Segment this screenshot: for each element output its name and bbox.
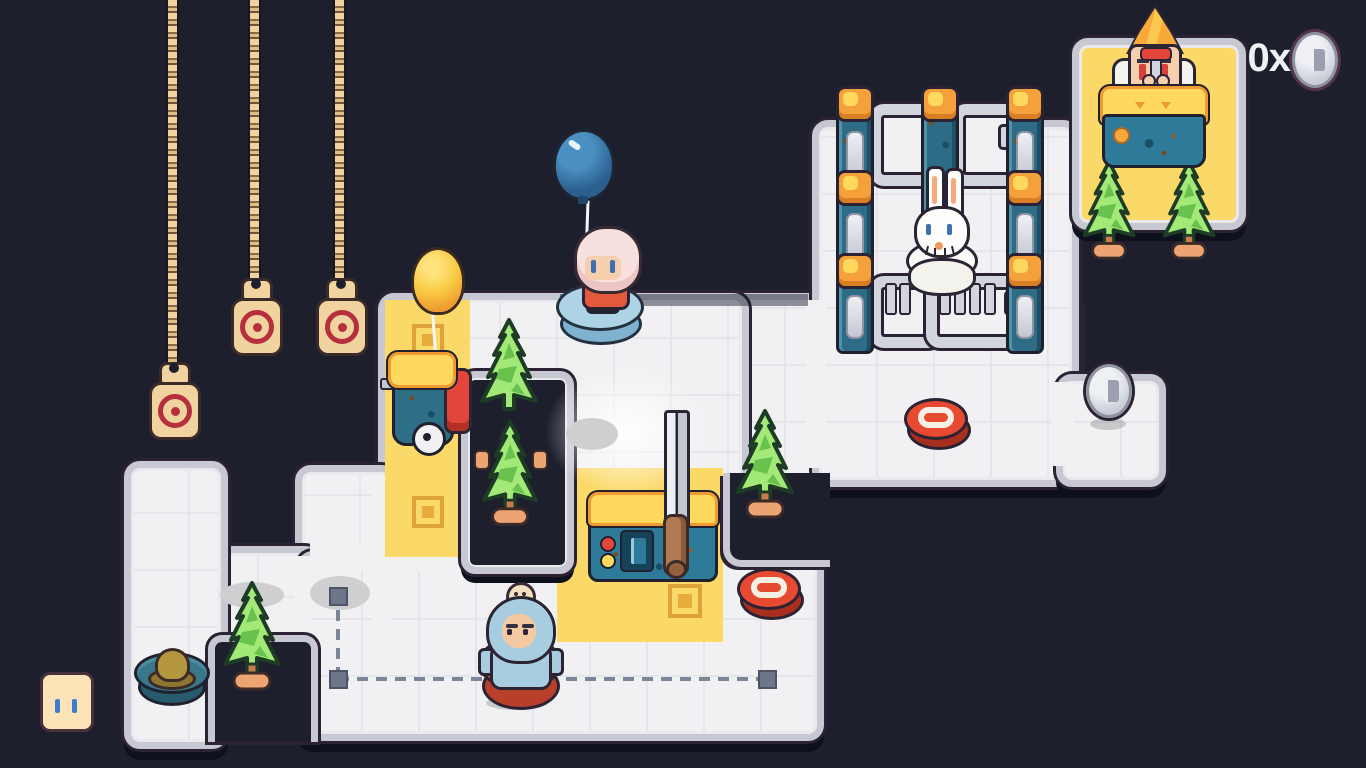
blob-eye — [55, 699, 60, 713]
game-scene: 0x — [0, 0, 1366, 768]
pillar-window — [1016, 295, 1034, 339]
pillar-window — [846, 295, 864, 339]
coin-slot — [1311, 49, 1325, 71]
rabbit-eye — [926, 224, 931, 235]
rabbit-base-bottom — [908, 258, 976, 296]
hanging-target[interactable] — [316, 298, 368, 356]
machine-button-red[interactable] — [600, 536, 616, 552]
hat-dome[interactable] — [155, 648, 190, 682]
rabbit-ear-inner — [951, 178, 956, 204]
base-tick — [944, 248, 946, 257]
balloon-shine — [567, 139, 581, 151]
gate-bar — [984, 283, 996, 315]
pillar-lamp — [1006, 253, 1044, 289]
desk-chevron — [1135, 102, 1145, 109]
floor-patch — [1052, 382, 1074, 466]
desk-light — [1113, 127, 1130, 144]
floor-coin[interactable] — [1086, 364, 1132, 418]
sword-machine-top — [588, 492, 718, 526]
hidden-hand — [474, 450, 490, 470]
machine-button-yellow[interactable] — [600, 553, 616, 569]
rabbit-character[interactable] — [904, 166, 976, 296]
rabbit-nose — [935, 242, 943, 250]
plunger-handle[interactable] — [1140, 47, 1172, 61]
route-waypoint — [329, 587, 348, 606]
route-waypoint — [329, 670, 348, 689]
coin-icon — [1292, 32, 1338, 88]
machine-slot-card — [631, 538, 646, 564]
player-eye — [610, 260, 615, 273]
desk-chevron — [1161, 102, 1171, 109]
pillar — [836, 92, 874, 354]
machine-slot — [620, 530, 654, 572]
control-desk-body — [1102, 114, 1206, 168]
yellow-balloon[interactable] — [414, 250, 462, 312]
cart-lid — [388, 352, 456, 388]
pine-tree-potted — [479, 414, 541, 532]
pillar-lamp — [836, 253, 874, 289]
suit-brow — [522, 624, 534, 628]
coin-shadow — [1090, 418, 1126, 430]
pine-tree — [477, 315, 541, 415]
pillar-lamp — [921, 86, 959, 122]
blue-balloon[interactable] — [556, 132, 612, 198]
wheel-hub — [423, 433, 431, 441]
hidden-hand — [532, 450, 548, 470]
gate-bar — [885, 283, 897, 315]
suit-eye — [523, 629, 528, 635]
chain-rope — [250, 0, 259, 280]
chain-rope — [168, 0, 177, 364]
chain-rope — [335, 0, 344, 280]
red-pad-button[interactable] — [737, 568, 801, 616]
pine-tree-potted — [733, 396, 797, 532]
sword-blade[interactable] — [664, 410, 690, 528]
blob-eye — [72, 699, 77, 713]
pine-tree-potted — [220, 568, 284, 704]
rabbit-head — [914, 206, 970, 258]
balloon-knot — [578, 196, 588, 204]
route-line-vertical — [336, 594, 340, 678]
base-tick — [934, 248, 936, 257]
target-rings — [240, 310, 274, 344]
pillar — [1006, 92, 1044, 354]
yellow-zone-marker — [412, 496, 444, 528]
coin-counter: 0x — [1236, 36, 1290, 81]
floor-patch — [806, 300, 826, 468]
coin-slot — [1105, 380, 1119, 402]
pillar-lamp — [836, 86, 874, 122]
player-eye — [591, 260, 596, 273]
cart-wheel — [412, 422, 446, 456]
suit-eye — [507, 629, 512, 635]
pillar-lamp — [1006, 86, 1044, 122]
target-rings — [158, 394, 192, 428]
pillar-lamp — [836, 170, 874, 206]
floor-patch — [294, 556, 312, 636]
target-rings — [325, 310, 359, 344]
rabbit-ear-inner — [932, 176, 937, 204]
route-waypoint — [758, 670, 777, 689]
red-pad-button[interactable] — [904, 398, 968, 446]
red-pad-ring — [918, 407, 954, 428]
sword-pommel — [666, 560, 687, 579]
red-pad-ring — [751, 577, 787, 598]
suit-brow — [506, 624, 518, 628]
rabbit-eye — [947, 224, 952, 235]
floor-shadow — [566, 418, 618, 450]
hanging-target[interactable] — [149, 382, 201, 440]
hanging-target[interactable] — [231, 298, 283, 356]
pillar-lamp — [1006, 170, 1044, 206]
yellow-zone-marker — [668, 584, 702, 618]
face-blob-character[interactable] — [40, 672, 94, 732]
